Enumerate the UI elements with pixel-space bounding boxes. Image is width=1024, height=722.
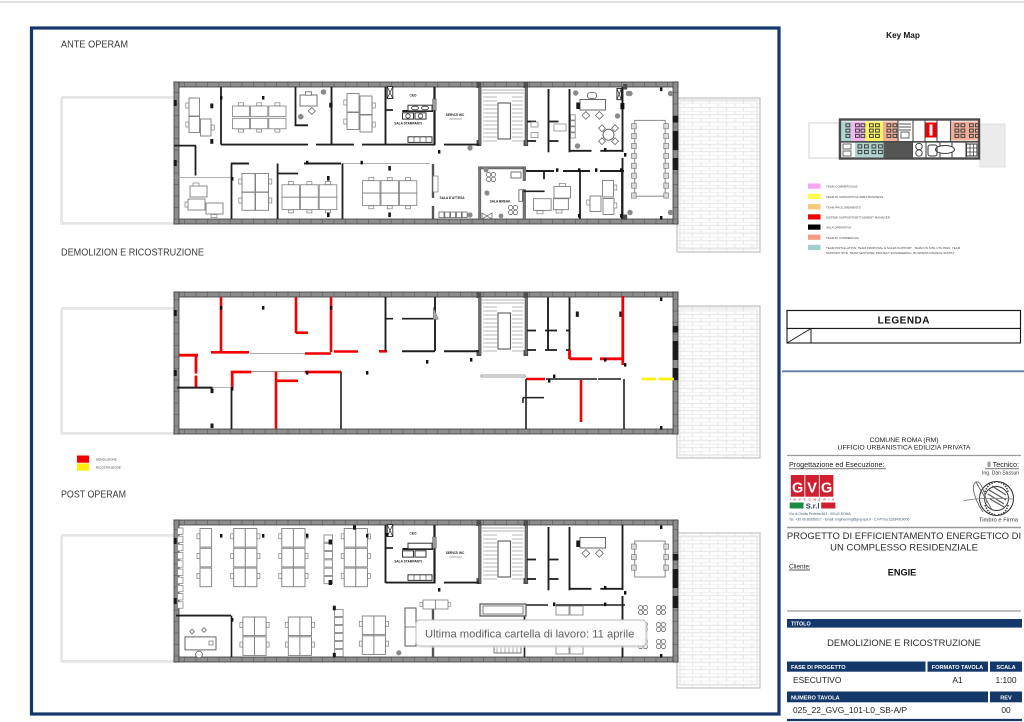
svg-text:Key Map: Key Map bbox=[886, 31, 920, 40]
svg-text:025_22_GVG_101-L0_SB-A/P: 025_22_GVG_101-L0_SB-A/P bbox=[793, 705, 907, 715]
svg-text:TITOLO: TITOLO bbox=[791, 622, 811, 628]
svg-text:CEO: CEO bbox=[410, 532, 417, 536]
svg-text:SALA STAMPANTI: SALA STAMPANTI bbox=[394, 560, 422, 564]
svg-text:UN COMPLESSO RESIDENZIALE: UN COMPLESSO RESIDENZIALE bbox=[830, 543, 978, 554]
svg-text:SISTEMI SUPPORT/SETTLEMENT MAN: SISTEMI SUPPORT/SETTLEMENT MANAGER bbox=[826, 216, 891, 220]
svg-text:SALA BREAK: SALA BREAK bbox=[490, 200, 511, 204]
svg-text:ENGIE: ENGIE bbox=[888, 568, 917, 578]
svg-text:Ing. Dan Sassun: Ing. Dan Sassun bbox=[982, 471, 1019, 477]
svg-text:LEGENDA: LEGENDA bbox=[878, 315, 930, 326]
svg-text:S.r.l: S.r.l bbox=[806, 501, 820, 510]
svg-text:1:100: 1:100 bbox=[996, 675, 1017, 685]
svg-text:ANTE OPERAM: ANTE OPERAM bbox=[61, 40, 128, 51]
svg-text:SCALA: SCALA bbox=[996, 665, 1015, 671]
svg-text:G: G bbox=[792, 481, 803, 497]
svg-text:SALA STAMPANTI: SALA STAMPANTI bbox=[394, 122, 422, 126]
svg-text:SALA D'ATTESA: SALA D'ATTESA bbox=[439, 196, 465, 200]
svg-text:FASE DI PROGETTO: FASE DI PROGETTO bbox=[791, 665, 846, 671]
svg-text:Il Tecnico:: Il Tecnico: bbox=[987, 460, 1019, 469]
svg-text:TEAM DI SUPPORTO E AREA BUSINE: TEAM DI SUPPORTO E AREA BUSINESS bbox=[826, 195, 883, 199]
svg-text:DEMOLIZION E RICOSTRUZIONE: DEMOLIZION E RICOSTRUZIONE bbox=[61, 247, 204, 258]
svg-text:CEO: CEO bbox=[410, 94, 417, 98]
svg-text:POST OPERAM: POST OPERAM bbox=[61, 489, 126, 500]
svg-text:Progettazione ed Esecuzione:: Progettazione ed Esecuzione: bbox=[789, 460, 885, 469]
svg-text:REV: REV bbox=[1000, 695, 1012, 701]
svg-text:Via di Grotta Perfetta 563 - 0: Via di Grotta Perfetta 563 - 00142 ROMA bbox=[789, 512, 851, 516]
svg-text:V: V bbox=[807, 481, 817, 497]
svg-text:TEAM COMMERCIALE: TEAM COMMERCIALE bbox=[826, 185, 858, 189]
svg-text:PROGETTO DI EFFICIENTAMENTO EN: PROGETTO DI EFFICIENTAMENTO ENERGETICO D… bbox=[787, 531, 1021, 542]
svg-text:SERVIZI WC: SERVIZI WC bbox=[446, 113, 465, 117]
svg-text:ESECUTIVO: ESECUTIVO bbox=[793, 675, 842, 685]
svg-text:NUMERO TAVOLA: NUMERO TAVOLA bbox=[791, 695, 840, 701]
svg-text:Timbro e Firma: Timbro e Firma bbox=[979, 518, 1019, 524]
svg-text:SUPPORT SITE, TEAM GESTIONE, P: SUPPORT SITE, TEAM GESTIONE, PROJECT ENG… bbox=[826, 251, 955, 255]
svg-text:COMUNE ROMA (RM): COMUNE ROMA (RM) bbox=[869, 437, 938, 444]
svg-text:RICOSTRUZIONE: RICOSTRUZIONE bbox=[96, 466, 121, 470]
svg-text:Ultima modifica cartella di la: Ultima modifica cartella di lavoro: 11 a… bbox=[425, 629, 634, 641]
svg-text:DEMOLIZIONE: DEMOLIZIONE bbox=[96, 458, 117, 462]
svg-text:TEAM DI COMMERCIAL: TEAM DI COMMERCIAL bbox=[826, 236, 860, 240]
svg-text:00: 00 bbox=[1001, 705, 1011, 715]
svg-text:TEAM PROCUREMENTS: TEAM PROCUREMENTS bbox=[826, 205, 861, 209]
svg-text:G: G bbox=[821, 481, 832, 497]
svg-text:FORMATO TAVOLA: FORMATO TAVOLA bbox=[932, 665, 983, 671]
svg-text:TEAM INSTALLATION, TEAM PROPOS: TEAM INSTALLATION, TEAM PROPOSAL E SALES… bbox=[826, 246, 961, 250]
svg-text:Cliente:: Cliente: bbox=[789, 564, 811, 571]
svg-text:A1: A1 bbox=[952, 675, 963, 685]
svg-text:DEMOLIZIONE E RICOSTRUZIONE: DEMOLIZIONE E RICOSTRUZIONE bbox=[827, 637, 981, 648]
svg-text:Tel. +39 06 89356917 - Email:: Tel. +39 06 89356917 - Email: engineerin… bbox=[789, 518, 909, 522]
svg-text:SALA OPERATIVA: SALA OPERATIVA bbox=[826, 226, 851, 230]
svg-text:SERVIZI WC: SERVIZI WC bbox=[446, 551, 465, 555]
svg-text:UFFICIO URBANISTICA EDILIZIA P: UFFICIO URBANISTICA EDILIZIA PRIVATA bbox=[838, 445, 971, 452]
